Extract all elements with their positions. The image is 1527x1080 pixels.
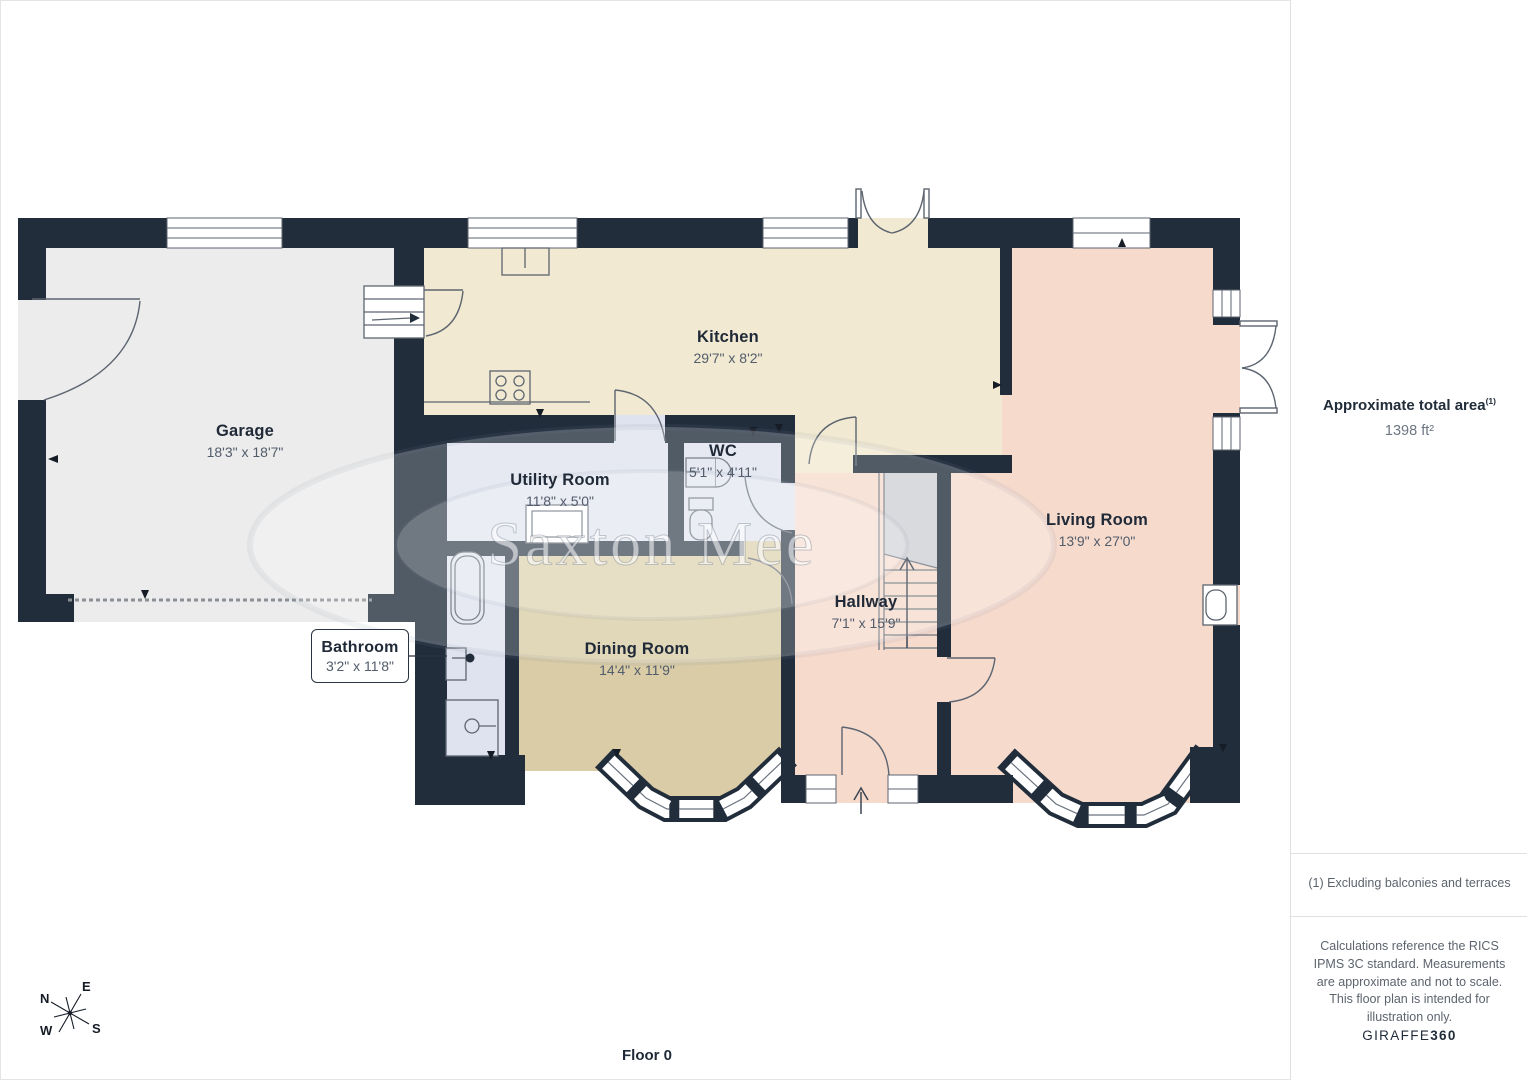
floorplan-page: Saxton Mee Garage 18'3" x 18'7" Kitchen …	[0, 0, 1527, 1080]
kitchen-window-left	[468, 218, 577, 248]
living-window-right-upper	[1213, 290, 1240, 317]
total-area-title: Approximate total area(1)	[1291, 396, 1527, 414]
fireplace-niche	[1203, 585, 1237, 625]
shower-icon	[446, 700, 498, 756]
compass-w: W	[40, 1023, 52, 1038]
sidebar-divider-bottom	[1291, 916, 1527, 917]
area-footnote: (1) Excluding balconies and terraces	[1305, 876, 1514, 890]
room-label-kitchen: Kitchen 29'7" x 8'2"	[694, 328, 763, 366]
living-window-top	[1073, 218, 1150, 248]
brand-logo: GIRAFFE360	[1291, 1028, 1527, 1043]
floor-label: Floor 0	[622, 1047, 672, 1064]
entrance-sidelight-right	[888, 775, 918, 803]
compass-star-icon	[28, 975, 118, 1055]
entrance-sidelight-left	[806, 775, 836, 803]
total-area-value: 1398 ft²	[1291, 423, 1527, 439]
compass-e: E	[82, 979, 91, 994]
floor-plan: Saxton Mee Garage 18'3" x 18'7" Kitchen …	[0, 0, 1290, 1080]
living-french-doors	[1240, 321, 1277, 413]
sidebar-divider-top	[1291, 853, 1527, 854]
disclaimer-text: Calculations reference the RICS IPMS 3C …	[1308, 938, 1511, 1027]
room-label-dining: Dining Room 14'4" x 11'9"	[585, 640, 690, 678]
room-label-wc: WC 5'1" x 4'11"	[689, 442, 757, 480]
footnote-marker: (1)	[1486, 396, 1496, 406]
kitchen-sink-icon	[502, 248, 549, 275]
watermark: Saxton Mee	[488, 510, 817, 581]
compass-rose: N E S W	[28, 975, 118, 1055]
room-label-bathroom: Bathroom 3'2" x 11'8"	[311, 629, 409, 683]
room-label-hallway: Hallway 7'1" x 15'9"	[832, 593, 901, 631]
kitchen-window-right	[763, 218, 848, 248]
garage-step-icon	[364, 286, 424, 338]
garage-window	[167, 218, 282, 248]
total-area-block: Approximate total area(1) 1398 ft²	[1291, 396, 1527, 439]
compass-n: N	[40, 991, 49, 1006]
room-label-garage: Garage 18'3" x 18'7"	[207, 422, 284, 460]
info-sidebar: Approximate total area(1) 1398 ft² (1) E…	[1290, 0, 1527, 1080]
living-window-right-lower	[1213, 417, 1240, 450]
room-label-utility: Utility Room 11'8" x 5'0"	[510, 471, 610, 509]
compass-s: S	[92, 1021, 101, 1036]
room-label-living: Living Room 13'9" x 27'0"	[1046, 511, 1148, 549]
